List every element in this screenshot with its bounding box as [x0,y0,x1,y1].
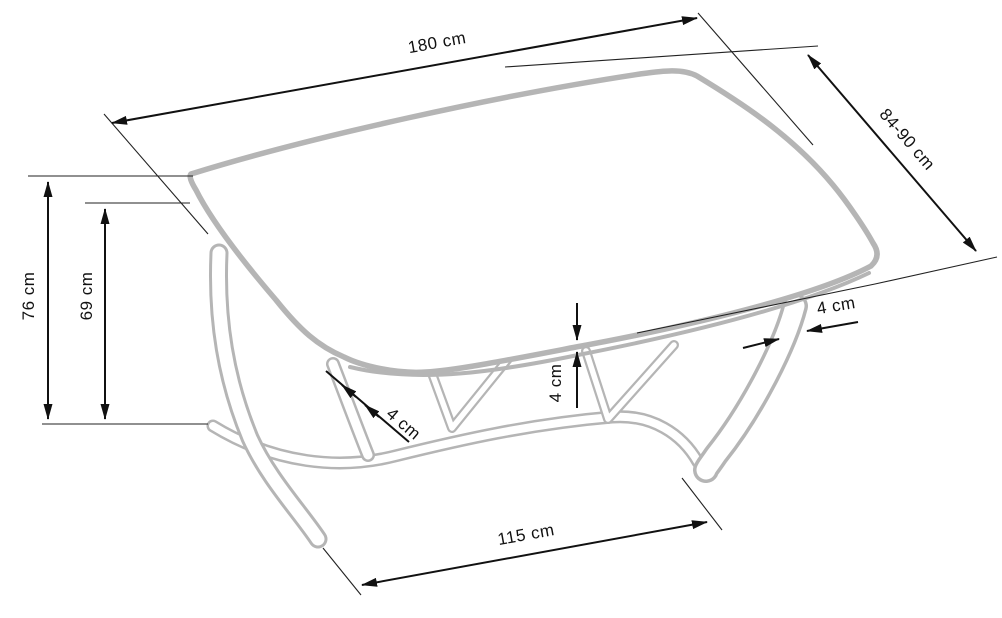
extension-line-depth-top [505,46,818,67]
table-strut-left-core [333,364,368,455]
dimension-arrow-left-leg-inner [365,405,379,417]
dimension-label-base-length: 115 cm [496,520,556,549]
dimension-label-table-length: 180 cm [406,28,467,57]
dimension-arrow-right-leg-right [807,322,858,331]
dimension-label-underside-clearance: 69 cm [77,272,96,321]
table-top [190,71,877,372]
extension-line-base-left [323,548,361,595]
dimension-label-right-leg-thickness: 4 cm [815,293,856,318]
dimension-label-top-thickness: 4 cm [546,364,565,403]
dimension-label-table-height: 76 cm [19,272,38,321]
table-leg-right-core [706,306,795,470]
dimension-label-table-depth: 84-90 cm [876,105,939,174]
table-leg-right [706,306,795,470]
table-dimension-drawing: 180 cm 84-90 cm 76 cm 69 cm 4 cm 4 cm 4 … [0,0,1002,618]
table-strut-left [333,364,368,455]
product-dimension-diagram: 180 cm 84-90 cm 76 cm 69 cm 4 cm 4 cm 4 … [0,0,1002,618]
table-truss-v2 [586,345,674,419]
